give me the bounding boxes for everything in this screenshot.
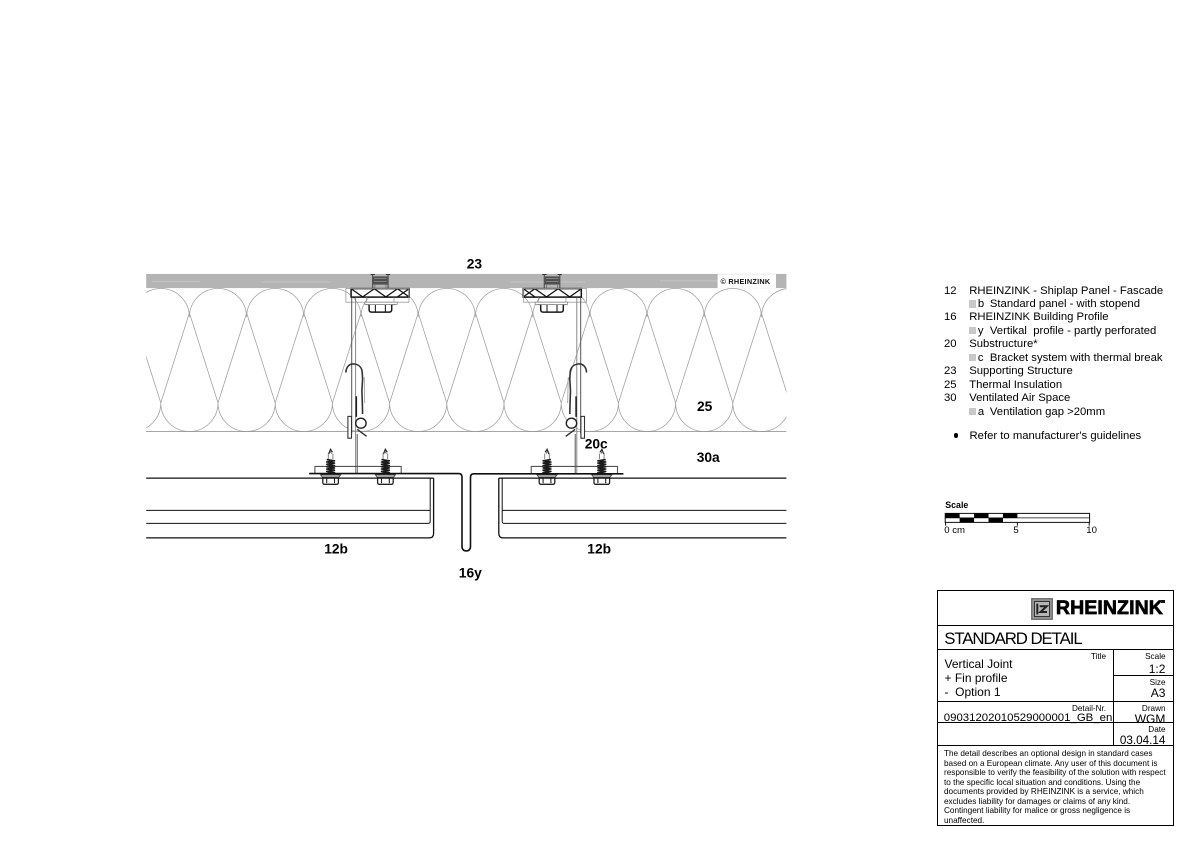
svg-text:23: 23 [467,256,483,271]
svg-text:25: 25 [697,399,713,414]
svg-text:© RHEINZINK: © RHEINZINK [721,277,771,286]
svg-text:12b: 12b [324,541,348,556]
svg-text:20c: 20c [585,436,608,451]
svg-text:30a: 30a [697,450,720,465]
svg-text:12b: 12b [587,541,611,556]
svg-text:16y: 16y [459,565,482,580]
